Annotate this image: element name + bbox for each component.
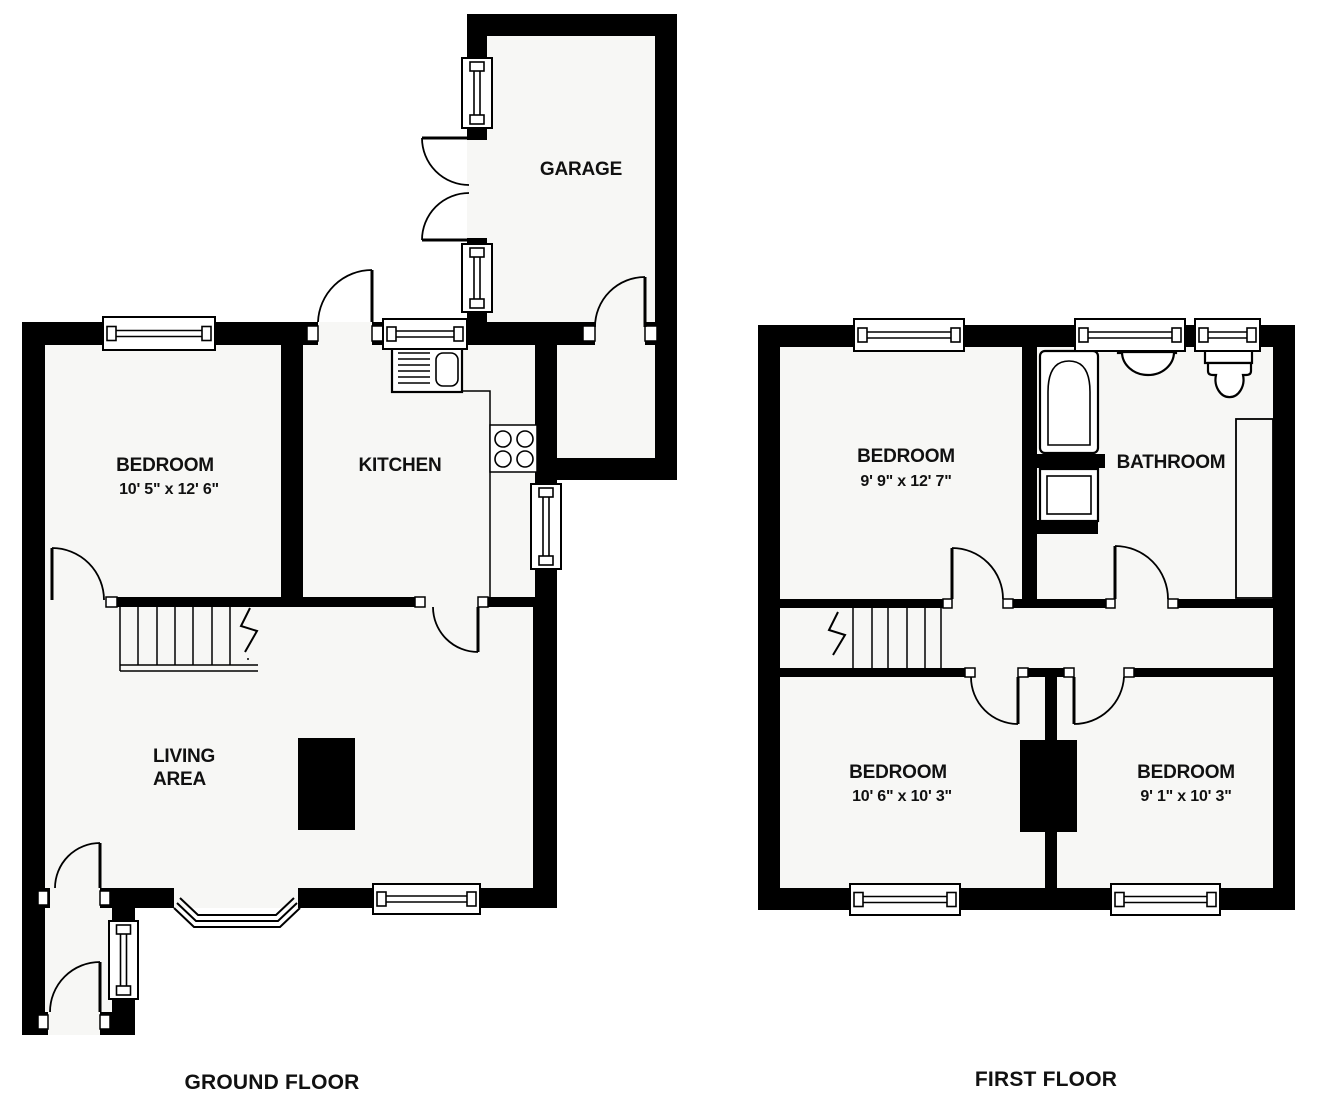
bathtub [1040, 351, 1098, 453]
bathroom-window-1 [1075, 319, 1185, 351]
kitchen-top-window [383, 319, 467, 349]
ff-bedroom3-label: BEDROOM [1137, 762, 1235, 783]
ff-bedroom1-label: BEDROOM [857, 446, 955, 467]
ff-chimney [1020, 740, 1077, 832]
garage-label: GARAGE [540, 159, 622, 180]
kitchen-sink [392, 347, 462, 392]
garage-window-top [462, 58, 492, 128]
first-floor-plan: BEDROOM 9' 9" x 12' 7" BATHROOM BEDROOM … [758, 325, 1295, 1091]
ff-bedroom2-label: BEDROOM [849, 762, 947, 783]
ff-bedroom2-window [850, 884, 960, 915]
gf-bedroom-label: BEDROOM [116, 455, 214, 476]
gf-chimney [298, 738, 355, 830]
garage-window-bottom [462, 244, 492, 312]
gf-bedroom-window [103, 317, 215, 350]
ff-bedroom2-dims: 10' 6" x 10' 3" [852, 788, 952, 805]
ff-bedroom1-window [854, 319, 964, 351]
ff-bedroom3-dims: 9' 1" x 10' 3" [1140, 788, 1231, 805]
living-area-label-line1: LIVING [153, 746, 215, 767]
stove [490, 425, 537, 472]
living-area-label-line2: AREA [153, 769, 207, 790]
bathroom-window-2 [1195, 319, 1260, 351]
kitchen-side-window [531, 484, 561, 569]
gf-bedroom-dims: 10' 5" x 12' 6" [119, 481, 219, 498]
living-area-window [373, 884, 480, 914]
back-door [318, 270, 372, 322]
garage-french-door-top [422, 138, 469, 185]
ground-floor-title: GROUND FLOOR [184, 1071, 359, 1094]
garage-french-door-bottom [422, 193, 469, 240]
first-floor-title: FIRST FLOOR [975, 1068, 1117, 1091]
floorplan-page: GARAGE BEDROOM 10' 5" x 12' 6" KITCHEN L… [0, 0, 1320, 1110]
porch-window [109, 921, 138, 999]
ff-bedroom3-window [1111, 884, 1220, 915]
ff-bedroom1-dims: 9' 9" x 12' 7" [860, 473, 951, 490]
floorplan-canvas: GARAGE BEDROOM 10' 5" x 12' 6" KITCHEN L… [0, 0, 1320, 1110]
shower-tray [1040, 469, 1098, 521]
gf-garage-fill [467, 14, 677, 480]
bathroom-label: BATHROOM [1117, 452, 1226, 473]
kitchen-label: KITCHEN [358, 455, 441, 476]
